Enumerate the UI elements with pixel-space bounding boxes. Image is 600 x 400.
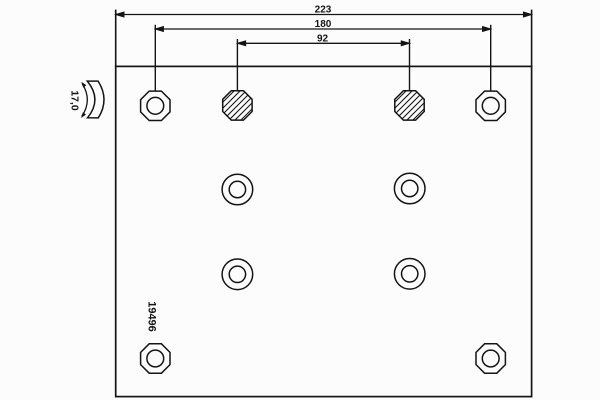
svg-text:19496: 19496	[146, 301, 158, 332]
svg-text:92: 92	[317, 34, 329, 45]
svg-text:180: 180	[315, 19, 332, 30]
svg-text:17,0: 17,0	[68, 90, 79, 110]
svg-text:223: 223	[315, 5, 332, 16]
